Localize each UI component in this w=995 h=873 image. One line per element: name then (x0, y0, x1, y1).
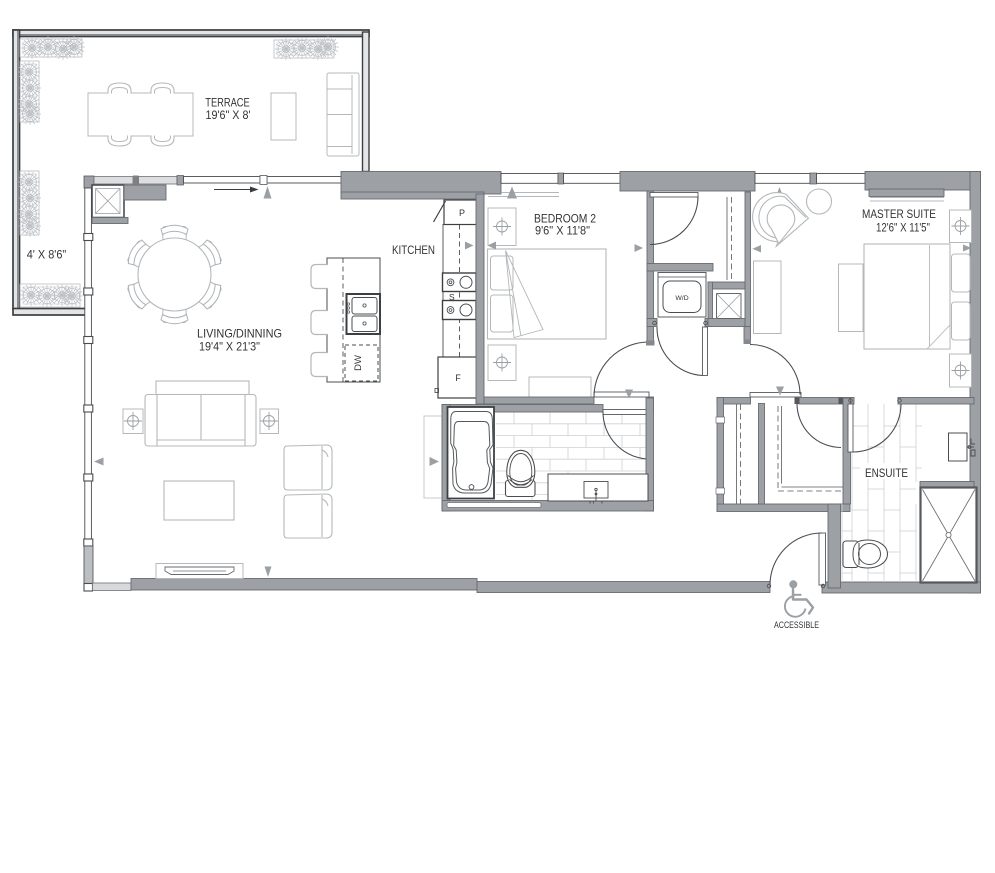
svg-text:9'6" X 11'8": 9'6" X 11'8" (535, 224, 590, 238)
svg-text:W/D: W/D (675, 295, 688, 302)
svg-text:MASTER SUITE: MASTER SUITE (862, 207, 936, 221)
svg-text:4' X 8'6": 4' X 8'6" (27, 248, 67, 262)
svg-text:ENSUITE: ENSUITE (865, 466, 908, 480)
svg-text:P: P (459, 208, 465, 218)
svg-text:DW: DW (353, 355, 364, 371)
svg-text:19'6" X 8': 19'6" X 8' (206, 108, 251, 122)
svg-text:19'4" X 21'3": 19'4" X 21'3" (199, 340, 260, 354)
svg-text:ACCESSIBLE: ACCESSIBLE (774, 620, 819, 631)
svg-text:12'6" X 11'5": 12'6" X 11'5" (876, 221, 930, 235)
svg-text:KITCHEN: KITCHEN (392, 243, 435, 257)
svg-text:F: F (455, 373, 461, 383)
svg-text:LIVING/DINNING: LIVING/DINNING (197, 327, 282, 341)
